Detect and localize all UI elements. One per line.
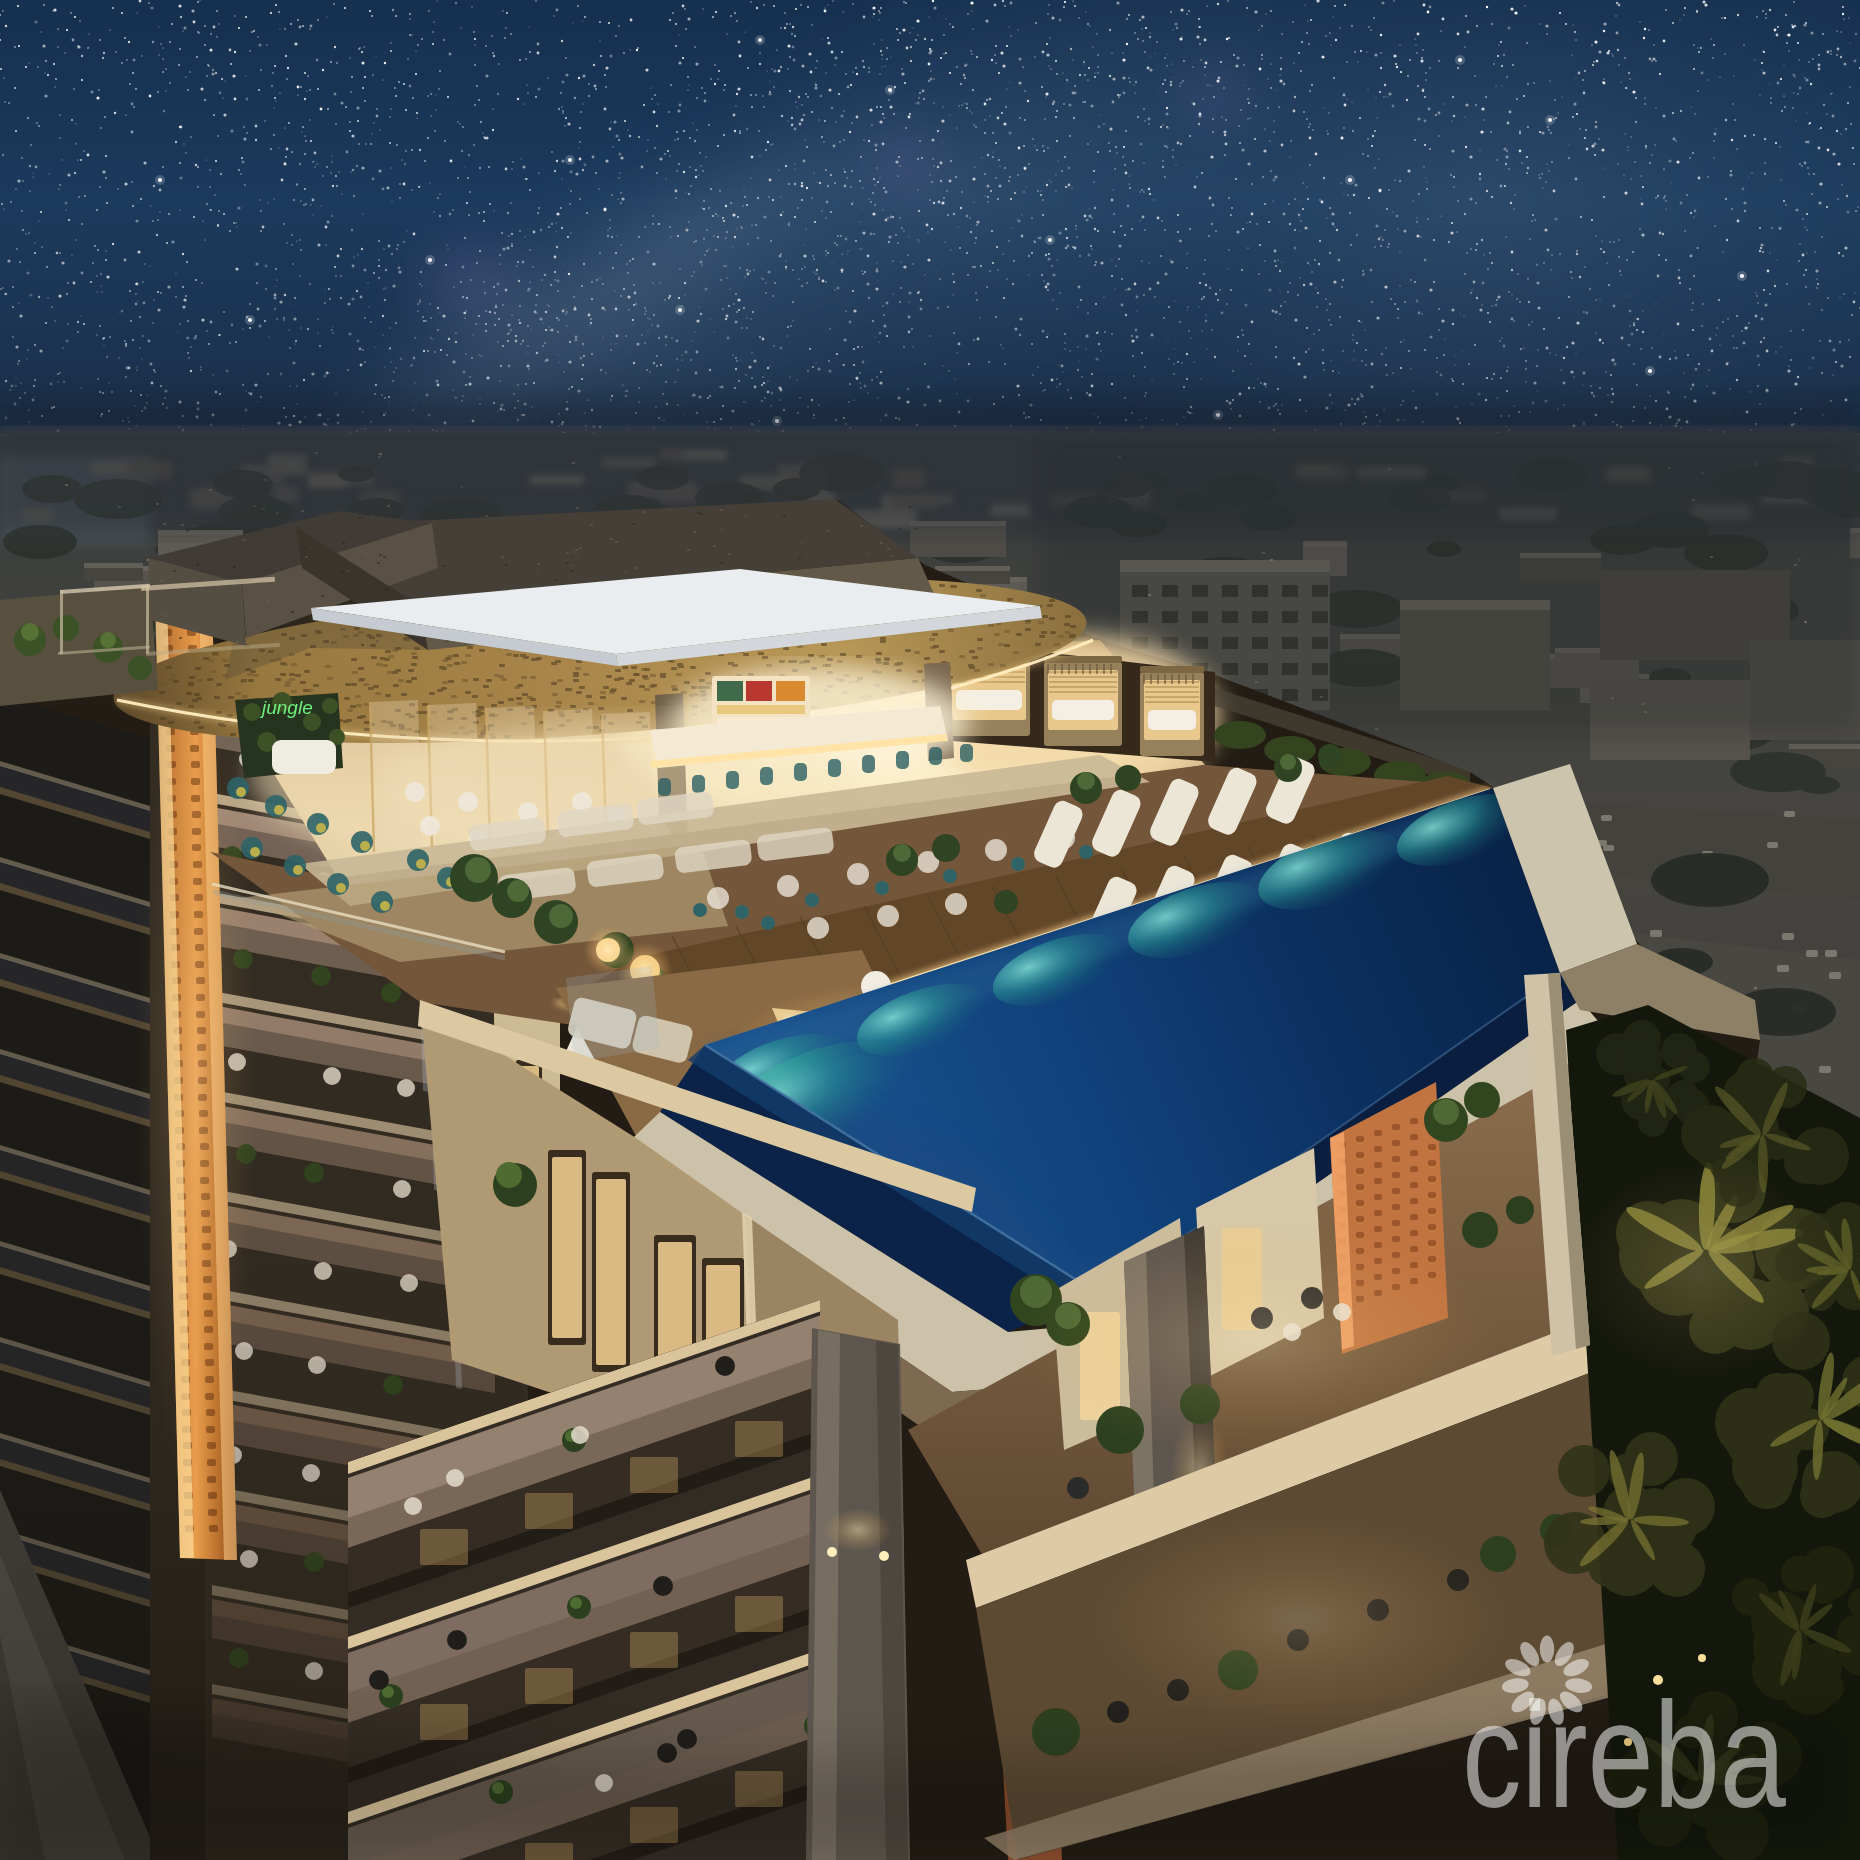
svg-text:cireba: cireba bbox=[1462, 1671, 1786, 1839]
svg-text:jungle: jungle bbox=[259, 697, 313, 718]
